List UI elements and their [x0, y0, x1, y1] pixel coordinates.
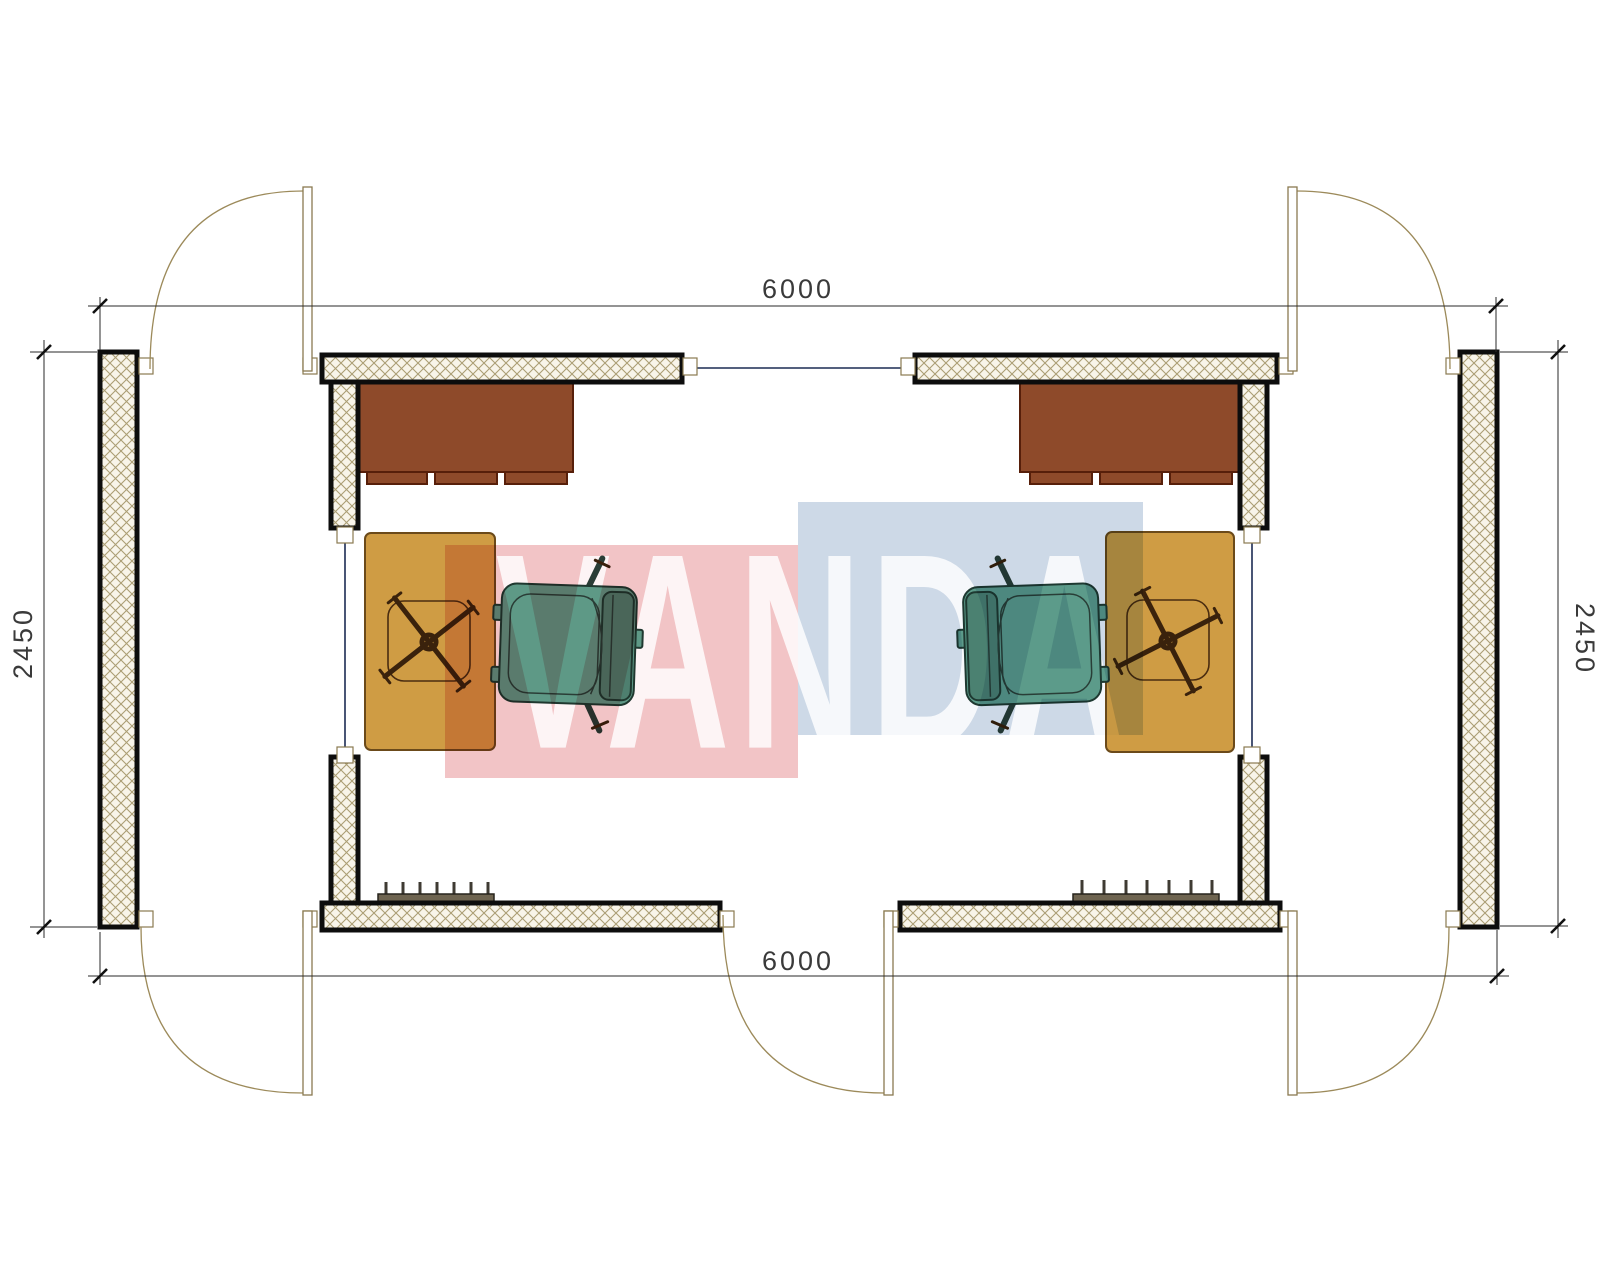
- watermark: VANDA: [445, 496, 1143, 808]
- desk-left-pedestal: [367, 472, 427, 484]
- wall-end-right-upper: [1240, 382, 1267, 528]
- window-jamb: [1244, 527, 1260, 543]
- desk-right: [1020, 382, 1240, 472]
- window-jamb: [337, 527, 353, 543]
- door-leaf-bottom-right: [1288, 911, 1297, 1095]
- window-jamb: [683, 358, 697, 375]
- radiator-right: [1073, 880, 1219, 904]
- dimension-text-left: 2450: [8, 607, 38, 679]
- wall-end-left-upper: [331, 382, 358, 528]
- door-jamb: [139, 358, 153, 374]
- wall-exterior-left: [100, 352, 137, 927]
- wall-bottom-right-room: [900, 903, 1280, 930]
- desk-right-pedestal: [1170, 472, 1232, 484]
- door-swing-top-right: [1297, 191, 1450, 369]
- door-jamb: [720, 911, 734, 927]
- wall-end-left-lower: [331, 757, 358, 903]
- floor-plan-drawing: 6000 6000 2450 2450 VANDA: [0, 0, 1600, 1280]
- door-jamb: [1446, 358, 1460, 374]
- desk-left: [357, 382, 573, 472]
- window-jamb: [901, 358, 915, 375]
- wall-end-right-lower: [1240, 757, 1267, 903]
- window-jamb: [1244, 747, 1260, 763]
- door-leaf-top-left: [303, 187, 312, 371]
- door-swing-bottom-left: [141, 927, 303, 1093]
- wall-bottom-left-room: [322, 903, 720, 930]
- wall-top-right-room: [915, 355, 1277, 382]
- watermark-text: VANDA: [496, 496, 1135, 808]
- desk-left-pedestal: [505, 472, 567, 484]
- window-jamb: [337, 747, 353, 763]
- door-jamb: [1446, 911, 1460, 927]
- desk-right-pedestal: [1030, 472, 1092, 484]
- door-leaf-bottom-left: [303, 911, 312, 1095]
- dimension-text-bottom: 6000: [762, 946, 834, 976]
- wall-exterior-right: [1460, 352, 1497, 927]
- wall-top-left-room: [322, 355, 682, 382]
- door-leaf-top-right: [1288, 187, 1297, 371]
- dimension-text-right: 2450: [1570, 603, 1600, 675]
- door-swing-bottom-right: [1297, 927, 1449, 1093]
- door-leaf-bottom-center: [884, 911, 893, 1095]
- door-swing-top-left: [150, 191, 303, 369]
- door-jamb: [139, 911, 153, 927]
- desk-right-pedestal: [1100, 472, 1162, 484]
- desk-left-pedestal: [435, 472, 497, 484]
- dimension-text-top: 6000: [762, 274, 834, 304]
- door-swing-bottom-center: [723, 915, 884, 1093]
- floor-plan-canvas: 6000 6000 2450 2450 VANDA: [0, 0, 1600, 1280]
